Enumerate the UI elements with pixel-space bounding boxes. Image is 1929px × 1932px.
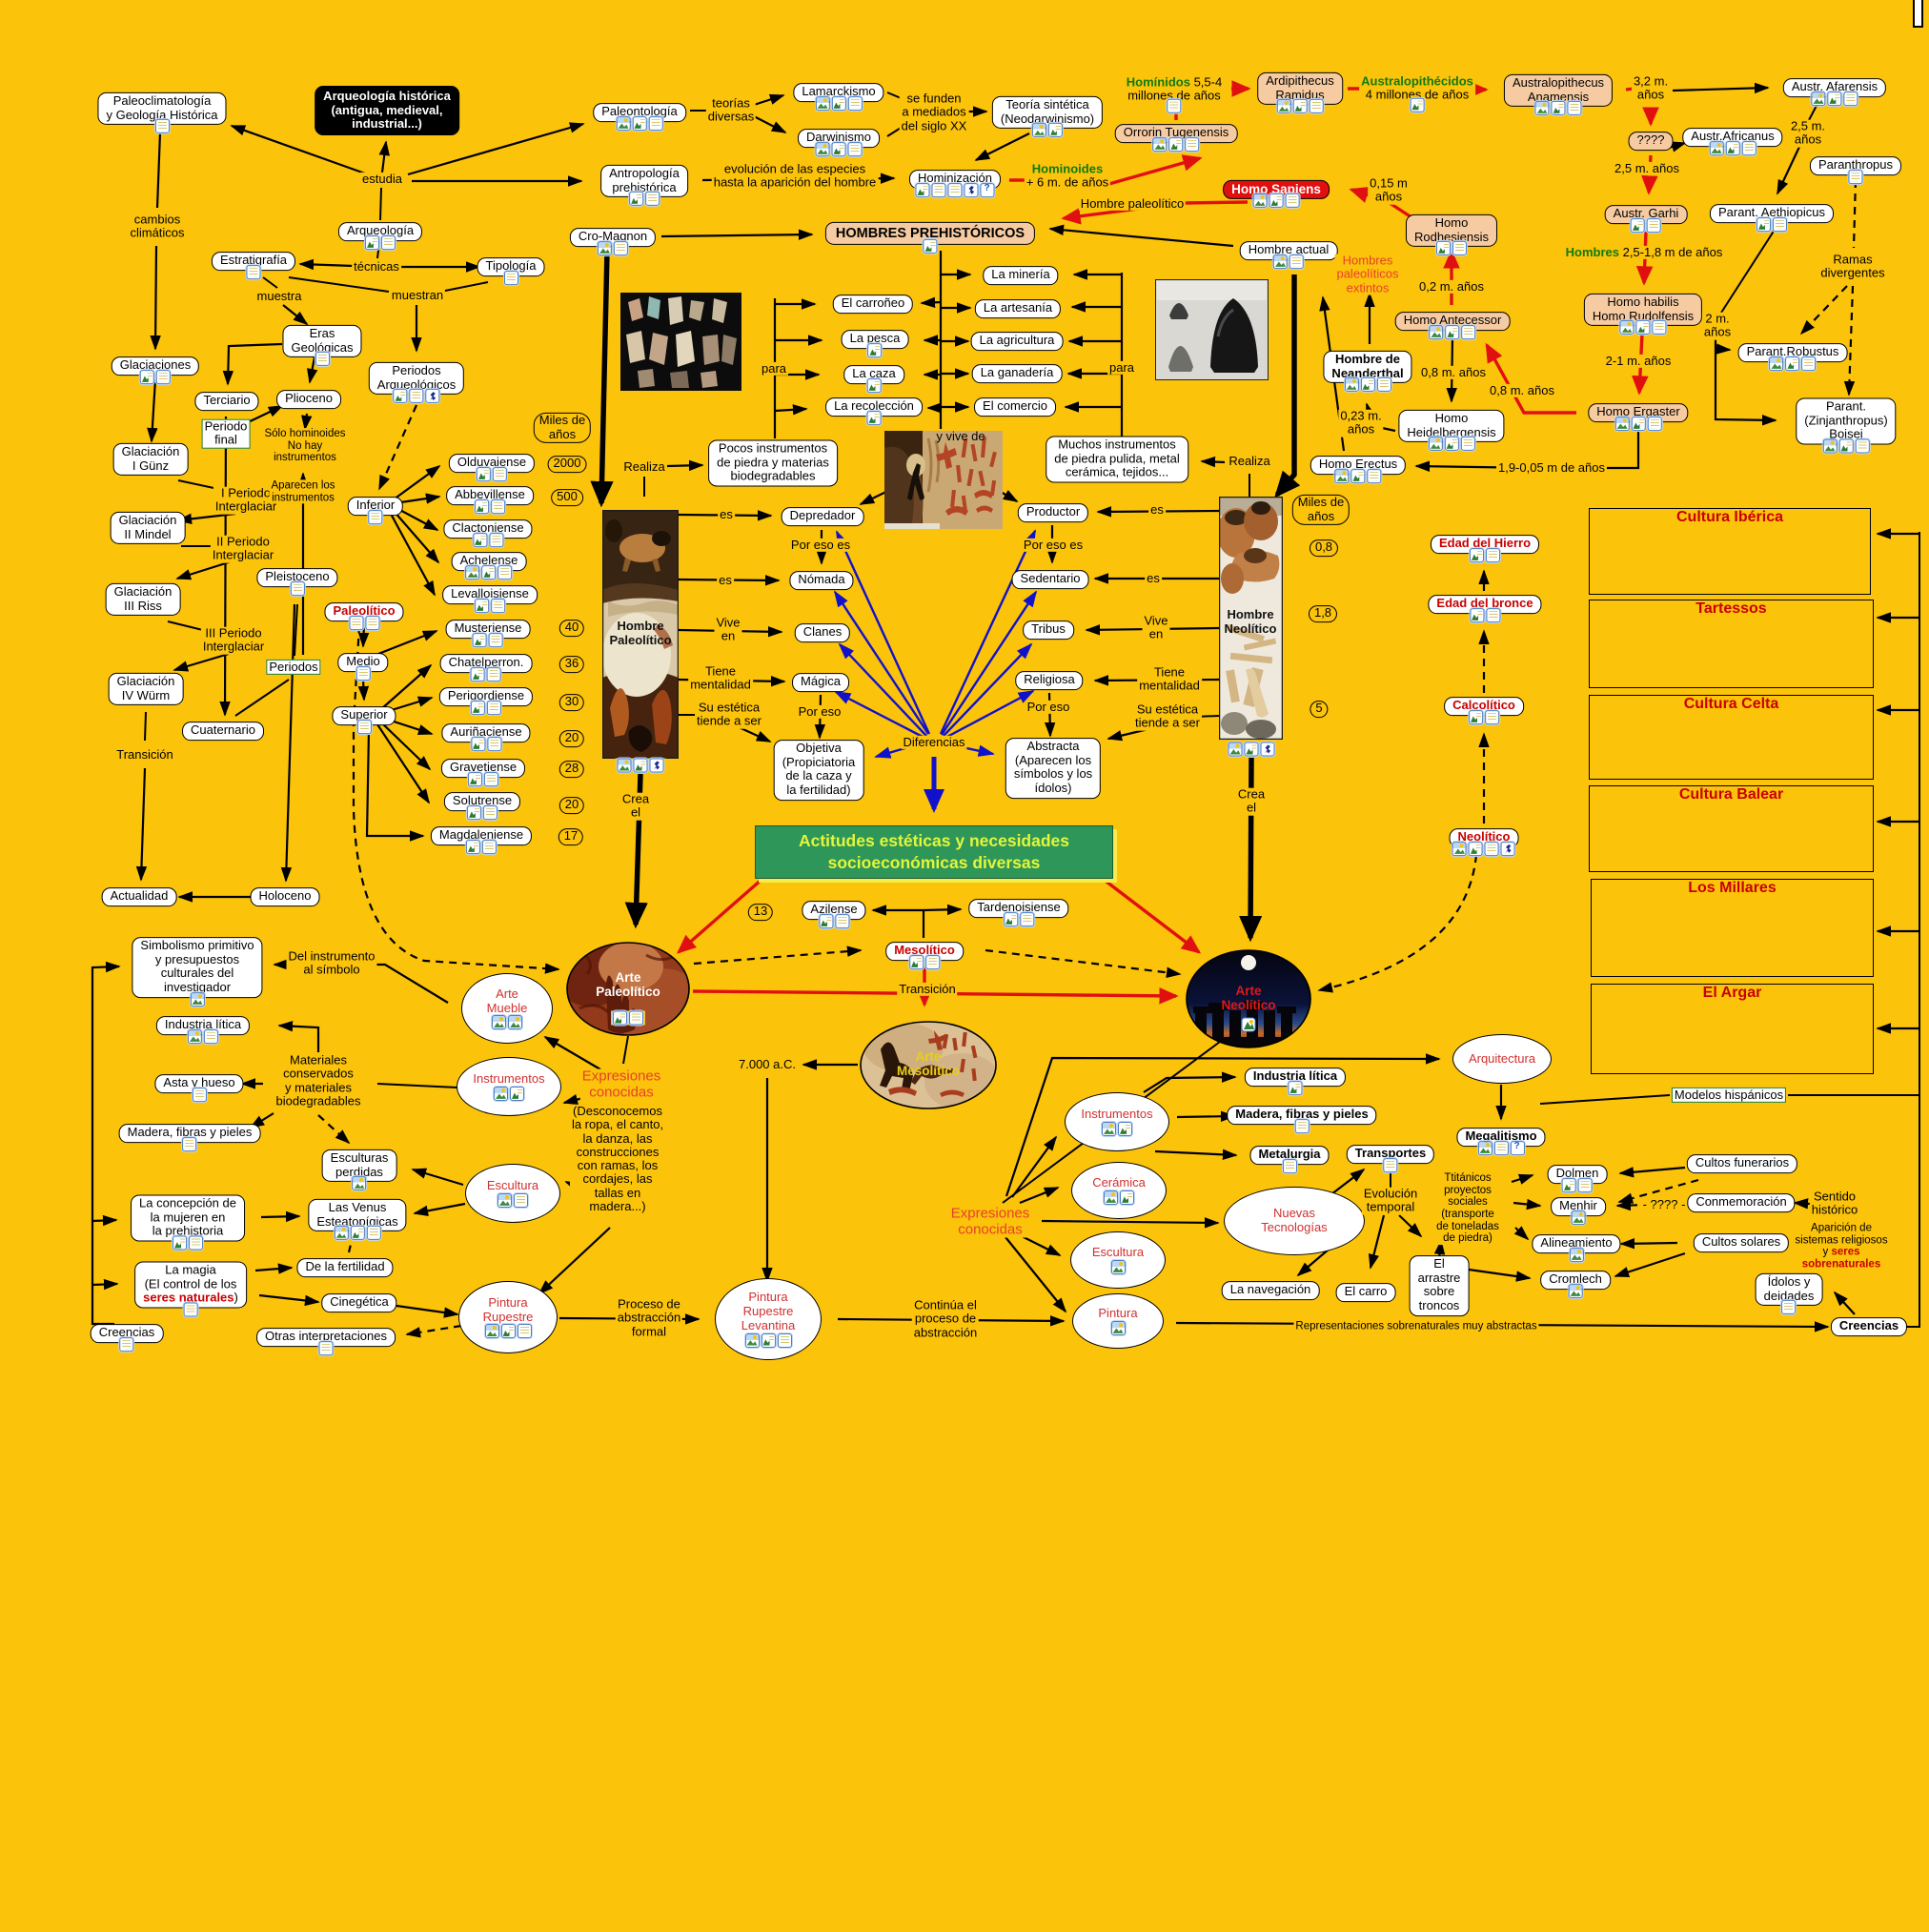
svg-text:Hombre: Hombre	[617, 619, 663, 633]
svg-text:Arte: Arte	[615, 970, 640, 985]
svg-text:Mesolítico: Mesolítico	[897, 1064, 960, 1078]
svg-text:Paleolítico: Paleolítico	[609, 633, 671, 647]
svg-text:Arte: Arte	[1235, 984, 1261, 998]
svg-text:Paleolítico: Paleolítico	[596, 985, 660, 999]
svg-text:Neolítico: Neolítico	[1221, 998, 1275, 1012]
svg-text:Arte: Arte	[915, 1049, 941, 1064]
svg-text:Neolítico: Neolítico	[1225, 621, 1277, 636]
svg-text:Hombre: Hombre	[1227, 607, 1273, 621]
